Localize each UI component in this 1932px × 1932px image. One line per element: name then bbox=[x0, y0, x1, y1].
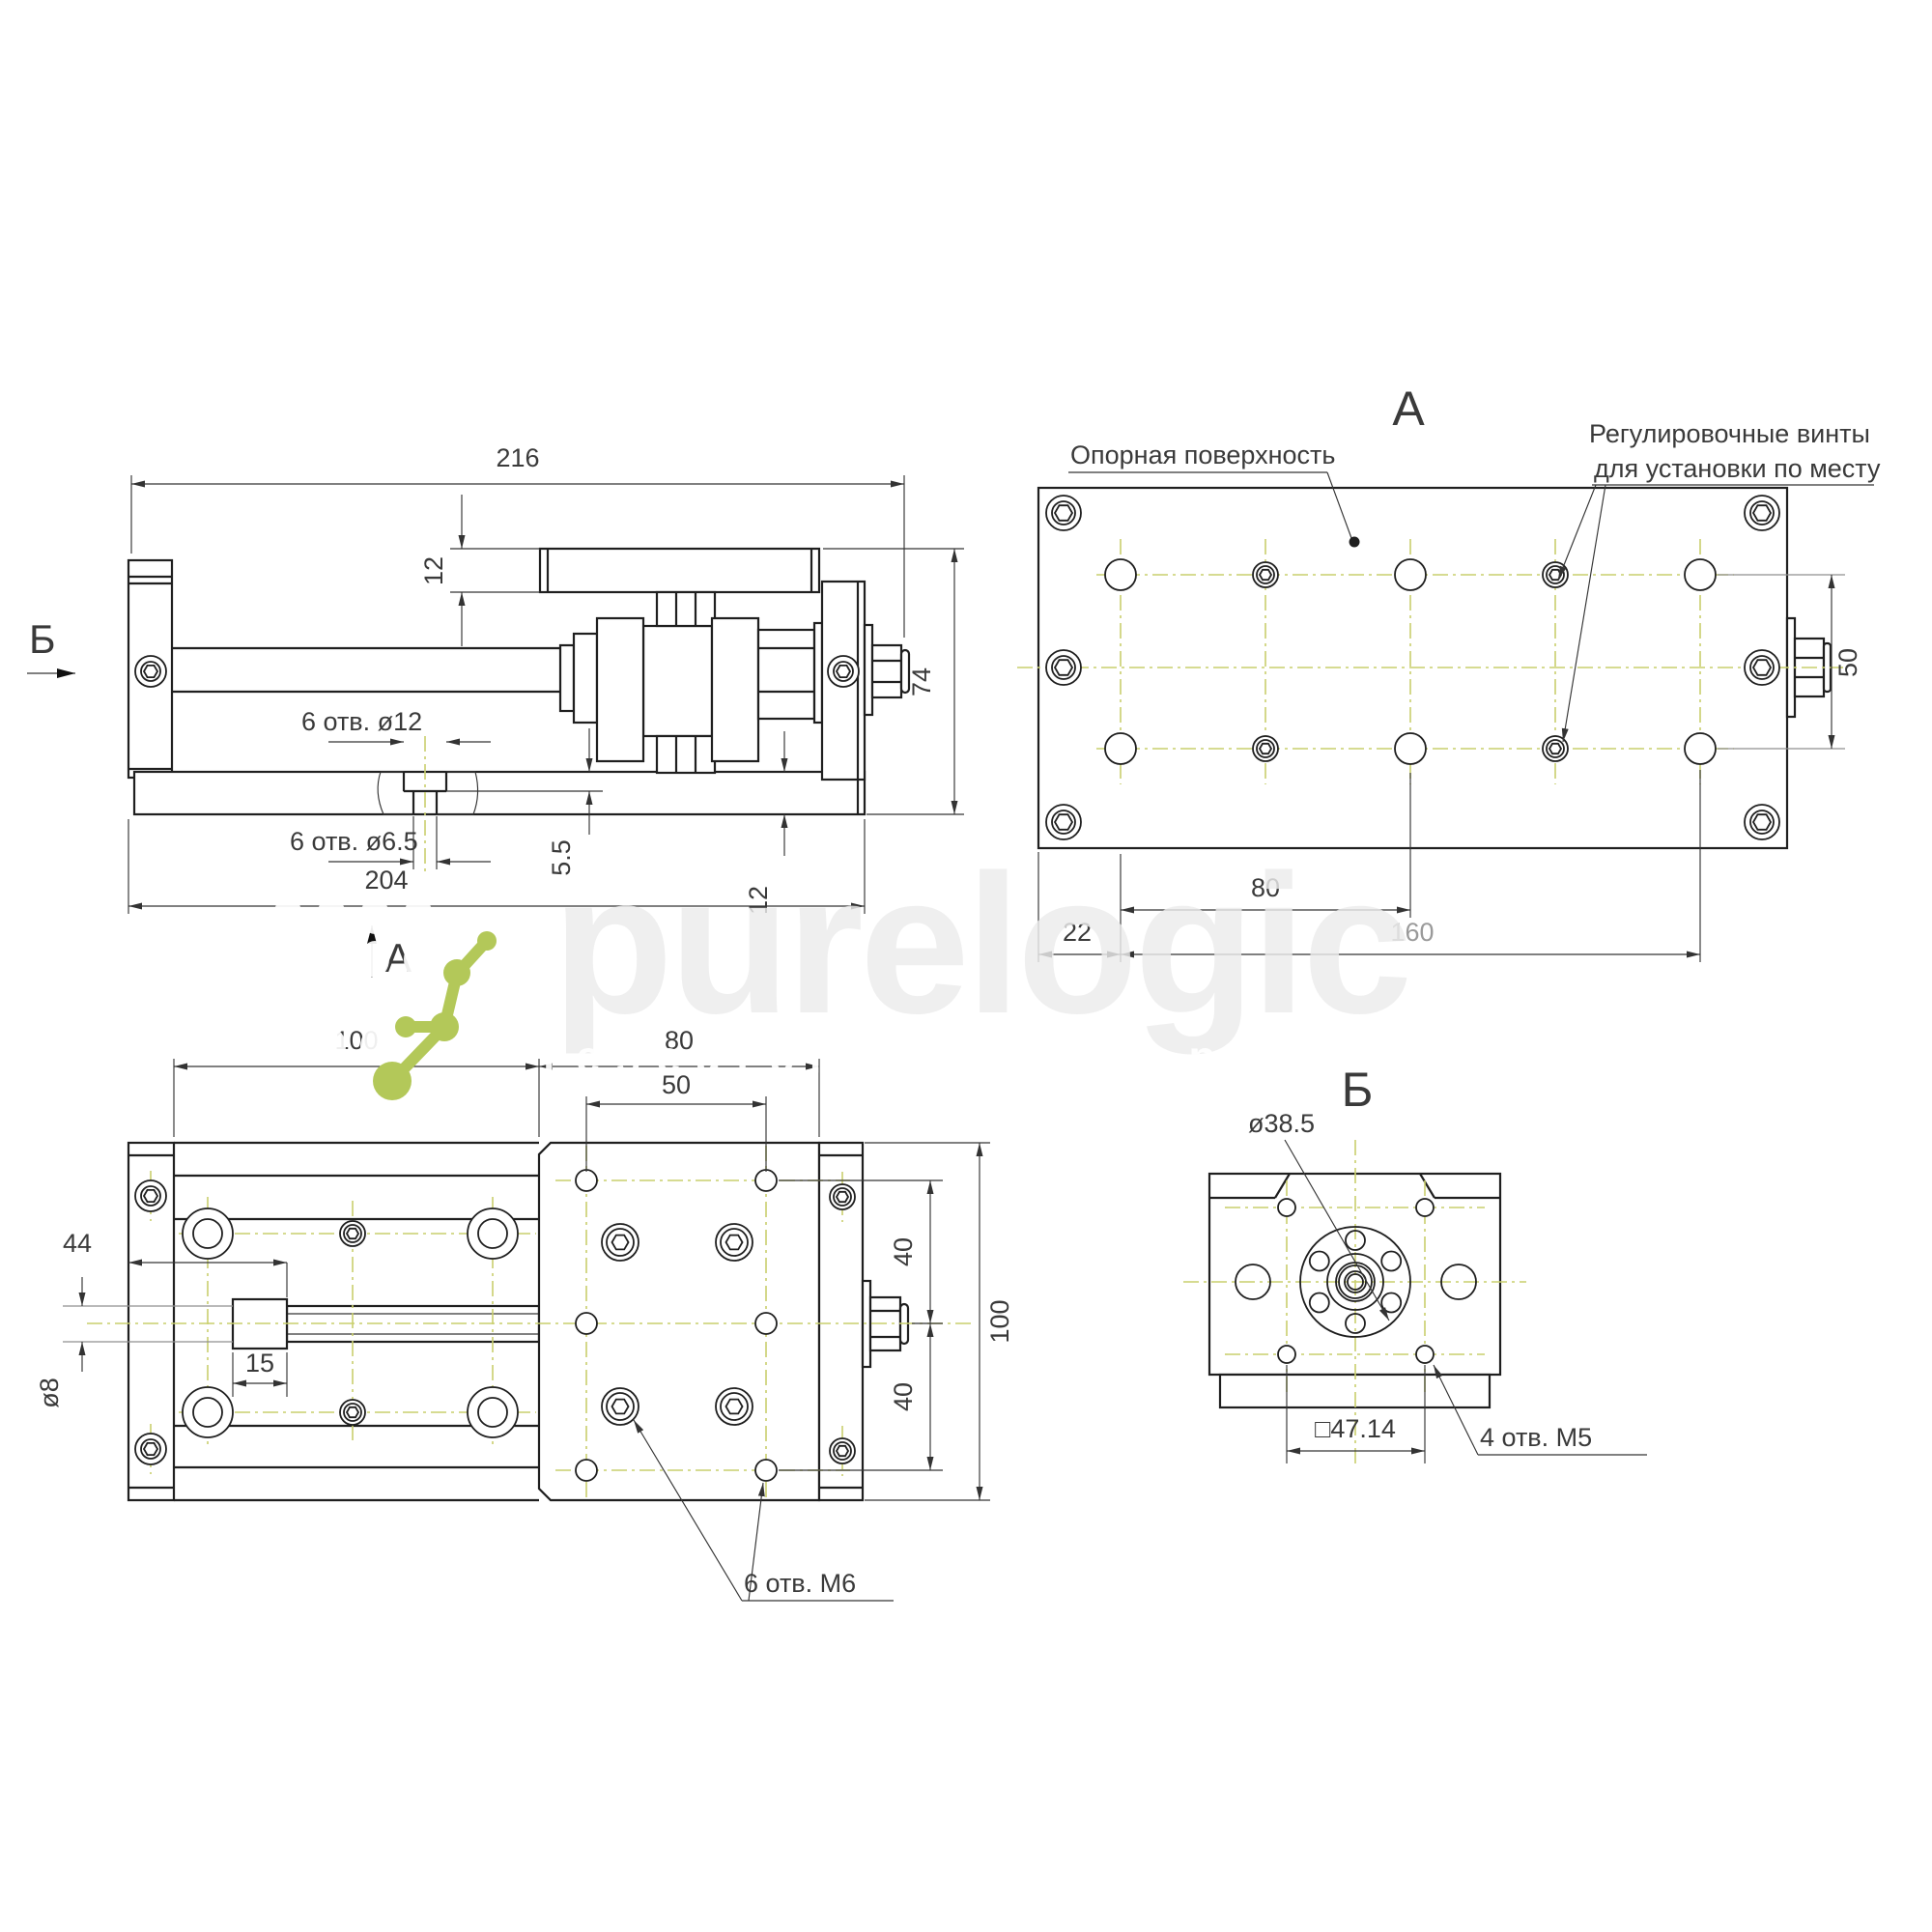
dim-a-rows: 50 bbox=[1833, 648, 1862, 677]
label-adjust-2: для установки по месту bbox=[1594, 454, 1881, 483]
label-surface: Опорная поверхность bbox=[1070, 440, 1335, 469]
watermark-brand: purelogic bbox=[553, 834, 1409, 1055]
section-arrow-b-label: Б bbox=[29, 616, 56, 662]
dim-top-offset: 44 bbox=[63, 1229, 92, 1258]
dim-side-height: 74 bbox=[907, 668, 936, 696]
top-part-geometry bbox=[128, 1143, 908, 1500]
watermark-tagline: research & development bbox=[543, 1032, 1399, 1082]
dim-top-shaft: ø8 bbox=[35, 1378, 64, 1408]
drawing-sheet: 216 12 74 6 отв. ø12 6 отв. ø6.5 5.5 12 bbox=[0, 0, 1932, 1932]
view-b: Б ø38.5 □47 bbox=[1183, 1063, 1647, 1468]
dim-side-plate: 12 bbox=[419, 556, 448, 585]
dim-b-flange: ø38.5 bbox=[1248, 1109, 1315, 1138]
dim-top-row-a: 40 bbox=[889, 1237, 918, 1266]
label-table-holes: 6 отв. М6 bbox=[744, 1569, 856, 1598]
dim-top-row-b: 40 bbox=[889, 1382, 918, 1411]
dim-side-length: 216 bbox=[496, 443, 539, 472]
view-a-title: А bbox=[1392, 382, 1425, 436]
dim-top-flat: 15 bbox=[245, 1349, 274, 1378]
label-adjust-1: Регулировочные винты bbox=[1589, 419, 1870, 448]
label-through-holes: 6 отв. ø6.5 bbox=[290, 827, 418, 856]
label-m5-holes: 4 отв. М5 bbox=[1480, 1423, 1592, 1452]
dim-top-width: 100 bbox=[985, 1299, 1014, 1343]
view-top: 100 80 50 44 15 ø8 40 40 100 bbox=[35, 1026, 1014, 1601]
drawing-canvas: 216 12 74 6 отв. ø12 6 отв. ø6.5 5.5 12 bbox=[0, 0, 1932, 1932]
side-part-geometry bbox=[128, 549, 909, 814]
label-counterbore: 6 отв. ø12 bbox=[301, 707, 422, 736]
dim-base-length: 204 bbox=[364, 866, 408, 895]
dim-b-square: □47.14 bbox=[1315, 1414, 1396, 1443]
